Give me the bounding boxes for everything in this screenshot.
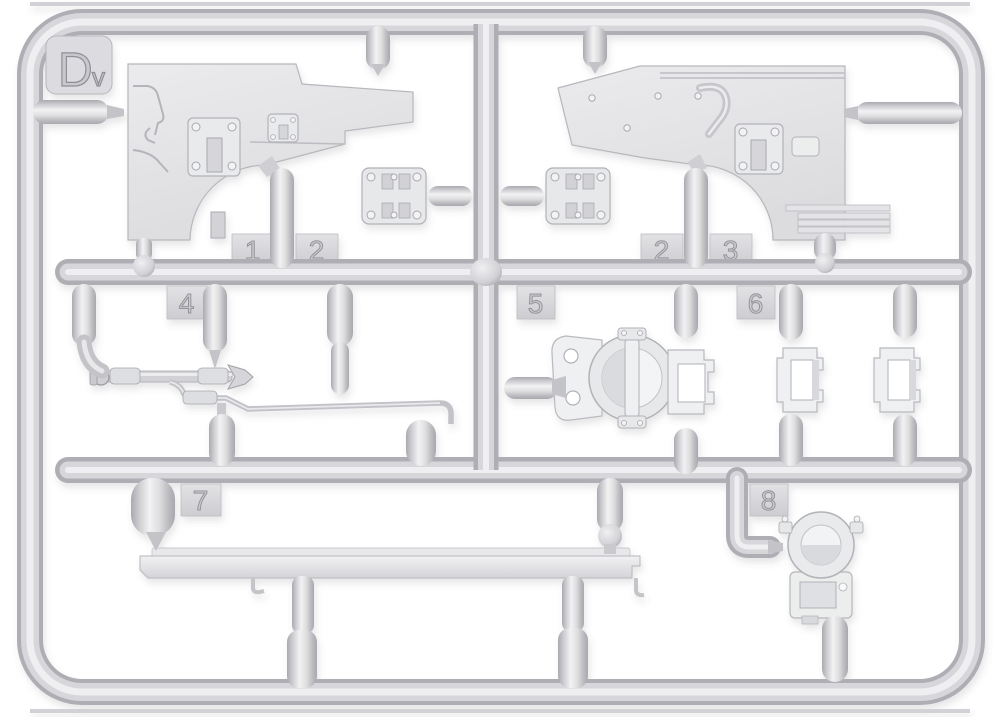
drop-cylinder-3 [327, 284, 353, 346]
strip-hook-left [253, 578, 264, 592]
pin-left-fender-cylinder [270, 168, 294, 268]
sprue-letter-sub: v [92, 62, 105, 92]
tag-6-number: 6 [748, 288, 765, 319]
gate-hinge-right [500, 186, 544, 206]
pin-right-fender-cylinder [684, 168, 708, 268]
sprue-letter-tab: D v [46, 36, 112, 97]
anchor-thin-rod-right [406, 420, 436, 466]
pillar-bracket-a-bottom [779, 414, 803, 466]
strip-hook-right [636, 578, 644, 595]
pillar-mid-top [674, 284, 698, 338]
tag-8: 8 [750, 484, 788, 516]
tag-4: 4 [167, 286, 207, 319]
sprue-drawing: 1 2 2 3 4 5 6 [0, 0, 1000, 717]
anchor-thin-rod-left [209, 414, 235, 466]
sprue-letter-main: D [58, 44, 93, 97]
pin-idler-bottom [822, 616, 848, 682]
fender-small-plate [268, 114, 298, 142]
part-hinge-left [362, 168, 426, 224]
right-fender-mount-plate [735, 124, 783, 174]
sprue-photo: 1 2 2 3 4 5 6 [0, 0, 1000, 717]
sprue-assembly: 1 2 2 3 4 5 6 [30, 2, 972, 713]
tag-8-number: 8 [761, 485, 778, 516]
fender-slot-post [211, 212, 225, 238]
strip-support-right [562, 576, 584, 632]
photo-top-edge-line [30, 2, 970, 6]
pillar-bracket-b-top [893, 284, 917, 338]
photo-bottom-edge-line [30, 709, 970, 713]
pillar-bracket-b-bottom [893, 414, 917, 466]
gate-pulley-clamp [504, 377, 558, 399]
part-pulley-clamp [552, 328, 714, 428]
part-linkage-rod [90, 365, 253, 389]
gate-top-right-fender [583, 26, 607, 68]
part-thin-strips [786, 205, 890, 233]
gate-left-fender-side [33, 100, 109, 124]
gate-hinge-left [428, 186, 472, 206]
tag-4-number: 4 [179, 288, 196, 319]
center-vertical-runner [470, 24, 502, 470]
gate-strip-right [597, 478, 623, 532]
tag-6: 6 [737, 286, 775, 319]
part-bracket-b [874, 348, 920, 412]
gate-strip-left [131, 478, 175, 536]
pillar-bracket-a-top [779, 284, 803, 340]
tag-7: 7 [181, 484, 221, 516]
part-idler-housing [779, 512, 863, 624]
drop-cylinder-2 [203, 284, 227, 352]
strip-support-left [292, 576, 314, 634]
fender-small-box [792, 137, 819, 156]
gate-right-fender-side [856, 102, 962, 124]
tag-5: 5 [517, 286, 555, 319]
part-bracket-a [777, 348, 823, 412]
thin-rod-sleeve [183, 391, 217, 404]
tag-5-number: 5 [528, 288, 545, 319]
pillar-mid-bottom [674, 428, 698, 474]
gate-top-left-fender [366, 26, 390, 70]
part-thin-rod [170, 382, 451, 424]
tag-7-number: 7 [193, 485, 210, 516]
part-hinge-right [546, 168, 610, 224]
fender-mount-plate [188, 118, 240, 176]
